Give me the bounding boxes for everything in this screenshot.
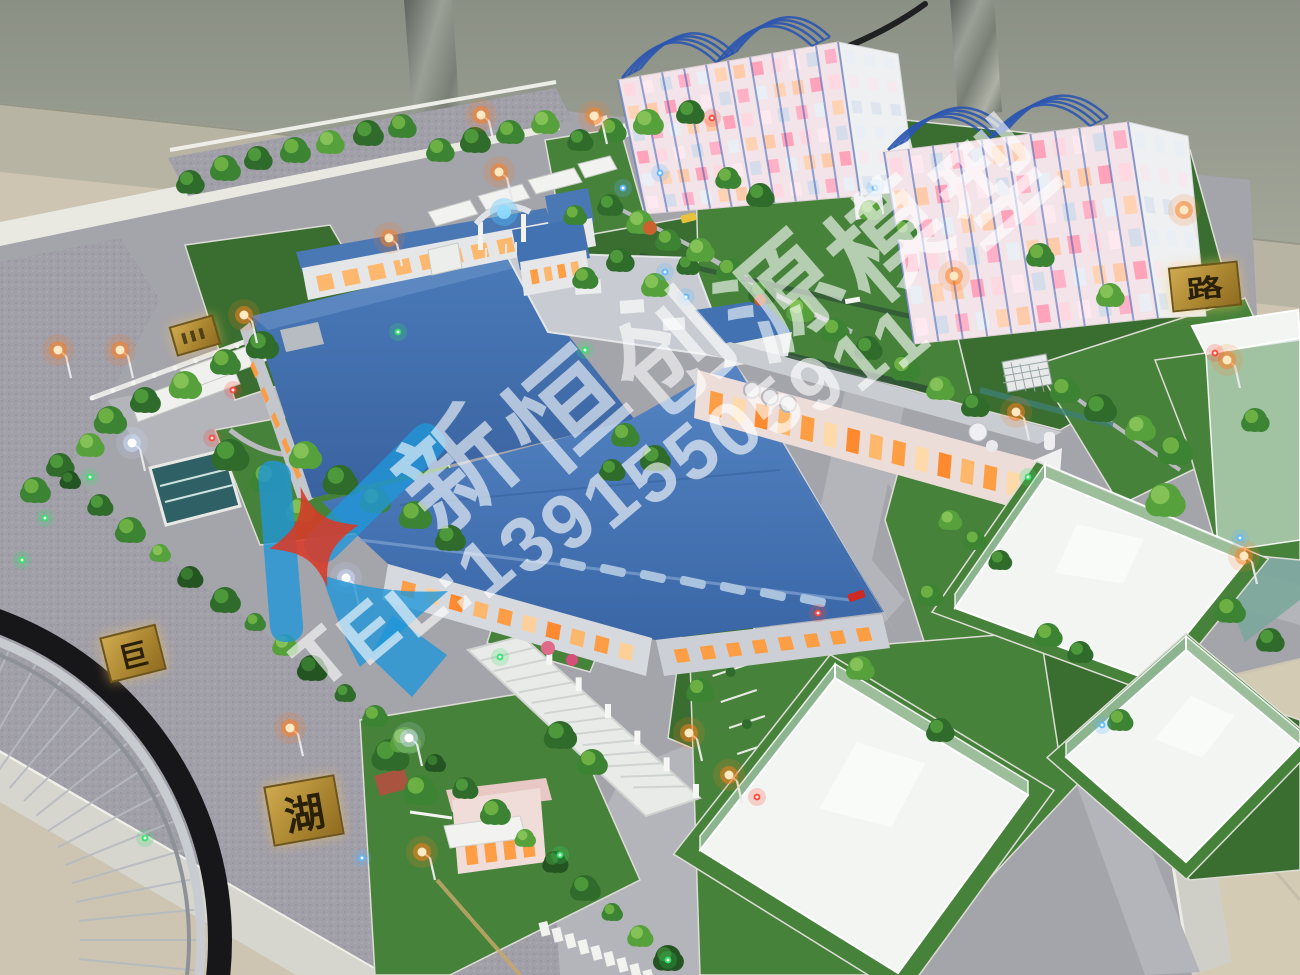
scale-model-scene (0, 0, 1300, 975)
gold-plaque-road: 路 (1168, 260, 1242, 312)
plaque-char: 湖 (279, 778, 328, 842)
plaque-char: 巨 (114, 630, 152, 678)
plaque-glyphs (181, 327, 208, 344)
plaque-char: 路 (1185, 267, 1225, 307)
gold-plaque-lake: 湖 (263, 774, 344, 847)
model-photo-stage: 新恒创源模型 TEL:13915505911 巨 湖 路 (0, 0, 1300, 975)
